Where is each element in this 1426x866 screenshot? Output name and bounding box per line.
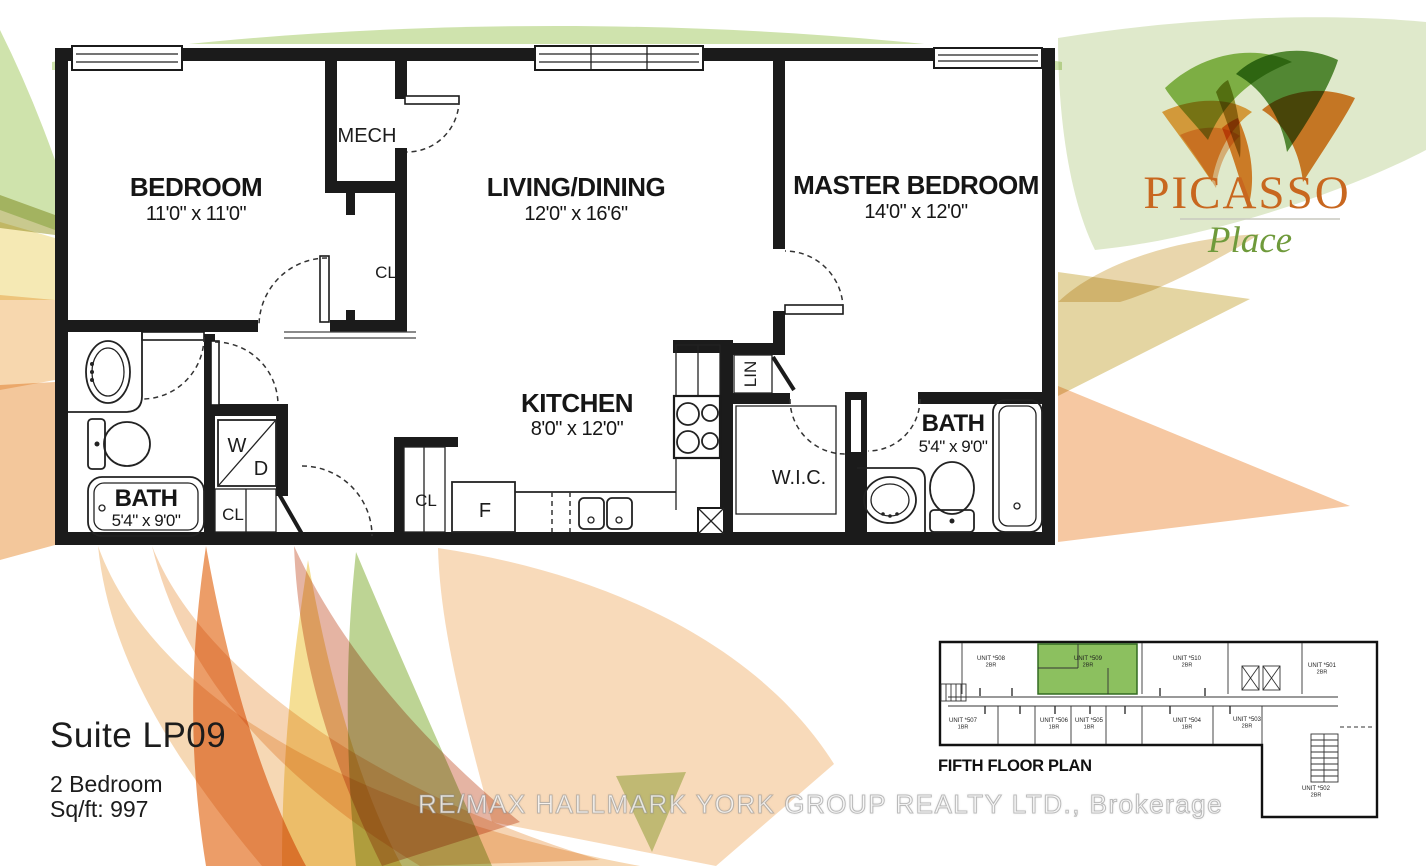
logo-title: PICASSO (1143, 167, 1350, 219)
room-dims-bedroom: 11'0" x 11'0" (146, 203, 247, 225)
room-label-master: MASTER BEDROOM (793, 170, 1039, 200)
room-label-bath2: BATH (922, 410, 985, 437)
room-label-lin: LIN (741, 361, 760, 387)
room-label-bedroom: BEDROOM (130, 172, 262, 202)
unit-label: UNIT *5022BR (1302, 786, 1331, 799)
stairs-icon (1311, 734, 1338, 782)
dishwasher-box (698, 508, 724, 534)
room-label-mech: MECH (338, 125, 397, 147)
unit-label: UNIT *5041BR (1173, 718, 1202, 731)
unit-label: UNIT *5051BR (1075, 718, 1104, 731)
room-dims-master: 14'0" x 12'0" (864, 201, 968, 223)
mini-plan-title: FIFTH FLOOR PLAN (938, 757, 1092, 775)
room-label-bath1: BATH (115, 485, 178, 512)
unit-label: UNIT *5102BR (1173, 656, 1202, 669)
unit-label: UNIT *5012BR (1308, 663, 1337, 676)
door-leaf (320, 256, 329, 322)
closet-label: CL (222, 505, 244, 524)
fridge-label: F (479, 500, 491, 522)
room-dims-bath1: 5'4" x 9'0" (112, 511, 181, 530)
suite-info: Suite LP09 2 Bedroom Sq/ft: 997 (50, 716, 226, 822)
room-label-kitchen: KITCHEN (521, 388, 633, 418)
unit-label: UNIT *5061BR (1040, 718, 1069, 731)
unit-labels: UNIT *5082BR UNIT *5092BR UNIT *5102BR U… (949, 656, 1337, 799)
door-leaf (211, 341, 219, 405)
watermark: RE/MAX HALLMARK YORK GROUP REALTY LTD., … (418, 789, 1223, 820)
unit-label: UNIT *5082BR (977, 656, 1006, 669)
suite-title: Suite LP09 (50, 716, 226, 756)
suite-bedrooms: 2 Bedroom (50, 772, 226, 797)
washer-label: W (228, 435, 247, 457)
closet-label: CL (415, 491, 437, 510)
window-icon (934, 48, 1042, 68)
room-label-living: LIVING/DINING (487, 172, 665, 202)
main-floor-plan: BEDROOM 11'0" x 11'0" LIVING/DINING 12'0… (55, 44, 1055, 545)
window-icon (72, 46, 182, 70)
stove-fixture (674, 396, 720, 458)
closet-label: CL (375, 263, 397, 282)
room-dims-living: 12'0" x 16'6" (524, 203, 628, 225)
door-leaf (405, 96, 459, 104)
door-leaf (785, 305, 843, 314)
suite-area: Sq/ft: 997 (50, 797, 226, 822)
door-leaf (142, 332, 204, 340)
elevator-icon (1242, 666, 1280, 690)
highlighted-unit (1038, 644, 1137, 694)
unit-label: UNIT *5032BR (1233, 717, 1262, 730)
room-label-wic: W.I.C. (772, 467, 826, 489)
floor-plan-sheet: PICASSO Place (0, 0, 1426, 866)
room-dims-kitchen: 8'0" x 12'0" (531, 418, 624, 440)
room-dims-bath2: 5'4" x 9'0" (919, 437, 988, 456)
unit-label: UNIT *5071BR (949, 718, 978, 731)
logo-subtitle: Place (1207, 220, 1292, 261)
window-icon (535, 46, 703, 70)
dryer-label: D (254, 458, 268, 480)
